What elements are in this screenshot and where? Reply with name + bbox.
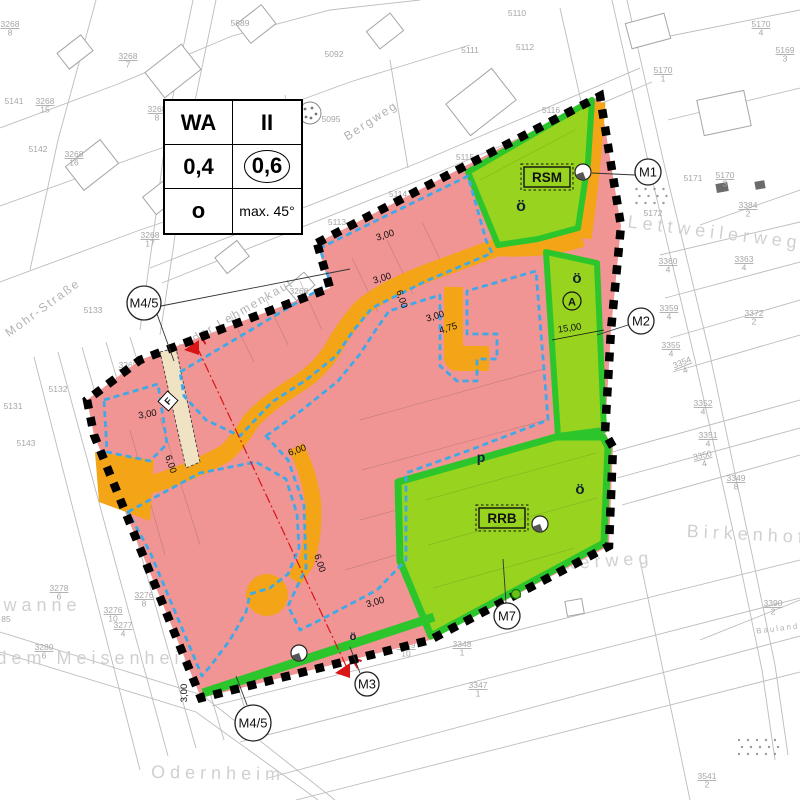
vegetation-dot: [747, 753, 749, 755]
vegetation-dot: [756, 753, 758, 755]
parcel-number: 33604: [659, 256, 678, 275]
map-canvas: 3268858893268751413268153268851423268163…: [0, 0, 800, 800]
vegetation-dot: [644, 188, 646, 190]
parcel-number: 5111: [461, 45, 479, 55]
parcel-number: 33842: [739, 200, 758, 219]
parcel-number: 33554: [662, 340, 681, 359]
vegetation-dot: [759, 746, 761, 748]
parcel-number: 32768: [135, 590, 154, 609]
vegetation-dot: [774, 739, 776, 741]
legend-wa: WA: [165, 101, 233, 145]
parcel-number: 33634: [735, 254, 754, 273]
legend-gfz: 0,6: [233, 145, 301, 189]
vegetation-dot: [747, 739, 749, 741]
parcel-number: 33524: [694, 398, 713, 417]
parcel-number: 5132: [49, 384, 68, 394]
street-name: Odernheim: [151, 762, 285, 784]
street-name: Bergweg: [341, 98, 400, 143]
parcel-number: 32687: [119, 51, 138, 70]
parcel-number: 5110: [508, 8, 527, 18]
parcel-number: 33471: [469, 680, 488, 699]
vegetation-dot: [662, 188, 664, 190]
parcel-number: 5095: [322, 114, 341, 124]
parcel-number: 326817: [141, 230, 160, 249]
street-name: Mohr-Straße: [2, 276, 83, 340]
vegetation-dot: [750, 746, 752, 748]
parcel-number: 5171: [684, 173, 703, 183]
parcel-number: 5113: [328, 217, 347, 227]
parcel-number: 33722: [745, 308, 764, 327]
zoning-legend-table: WA II 0,4 0,6 o max. 45°: [163, 99, 303, 235]
green-area-letter: p: [477, 449, 486, 465]
vegetation-dot: [653, 188, 655, 190]
vegetation-dot: [765, 753, 767, 755]
marker-label: M3: [358, 677, 376, 692]
vegetation-dot: [741, 746, 743, 748]
marker-label: M7: [498, 609, 516, 624]
parcel-number: 51704: [752, 19, 771, 38]
legend-open: o: [165, 189, 233, 233]
parcel-number: 5112: [516, 42, 535, 52]
vegetation-dot: [647, 195, 649, 197]
street-name: Bauland: [756, 621, 800, 635]
parcel-number: 5133: [84, 305, 103, 315]
vegetation-dot: [635, 188, 637, 190]
parcel-number: 5092: [325, 49, 344, 59]
parcel-number: 33504: [692, 448, 715, 470]
parcel-number: 51701: [654, 65, 673, 84]
street-name: ewanne: [0, 595, 82, 615]
tree-symbols: [512, 590, 521, 599]
parcel-number: 5116: [542, 105, 561, 115]
dimension-label: 3,00: [179, 684, 190, 703]
vegetation-dot: [756, 739, 758, 741]
vegetation-dot: [662, 202, 664, 204]
circled-a-label: A: [568, 297, 576, 309]
green-area-letter: ö: [350, 631, 357, 643]
legend-gfz-circled: 0,6: [244, 150, 291, 183]
legend-storeys: II: [233, 101, 301, 145]
vegetation-dot: [644, 202, 646, 204]
marker-label: M4/5: [239, 716, 268, 731]
rsm-label: RSM: [532, 170, 562, 185]
parcel-number: 32688: [1, 19, 20, 38]
parcel-number: 85: [1, 614, 11, 624]
marker-label: M4/5: [130, 296, 159, 311]
parcel-number: 33481: [453, 639, 472, 658]
parcel-number: 5889: [231, 18, 250, 28]
vegetation-dot: [656, 195, 658, 197]
parcel-number: 5142: [29, 144, 48, 154]
vegetation-dot: [635, 202, 637, 204]
parcel-number: 5131: [4, 401, 23, 411]
parcel-number: 33498: [727, 473, 746, 492]
vegetation-dot: [653, 202, 655, 204]
street-name: Birkenhof: [686, 521, 800, 547]
vegetation-dot: [665, 195, 667, 197]
parcel-number: 5141: [5, 96, 24, 106]
vegetation-dot: [765, 739, 767, 741]
vegetation-dot: [768, 746, 770, 748]
green-area-letter: ö: [572, 270, 581, 287]
green-area-letter: ö: [516, 198, 526, 215]
parcel-number: 5143: [17, 438, 36, 448]
legend-roof-pitch: max. 45°: [233, 189, 301, 233]
rrb-label: RRB: [487, 511, 516, 526]
vegetation-dot: [777, 746, 779, 748]
vegetation-dot: [774, 753, 776, 755]
parcel-number: 51693: [776, 45, 795, 64]
zoning-plan-map: 3268858893268751413268153268851423268163…: [0, 0, 800, 800]
parcel-number: 33514: [699, 430, 718, 449]
vegetation-dot: [638, 195, 640, 197]
parcel-number: 33594: [660, 303, 679, 322]
green-area-letter: ö: [575, 481, 584, 498]
parcel-number: 35412: [698, 771, 717, 790]
legend-grz: 0,4: [165, 145, 233, 189]
vegetation-dot: [738, 739, 740, 741]
vegetation-dot: [738, 753, 740, 755]
tree-icon: [512, 590, 521, 599]
marker-label: M1: [639, 165, 657, 180]
street-name: Lettweilerweg: [627, 211, 800, 252]
parcel-number: 326815: [36, 96, 55, 115]
marker-label: M2: [632, 314, 650, 329]
